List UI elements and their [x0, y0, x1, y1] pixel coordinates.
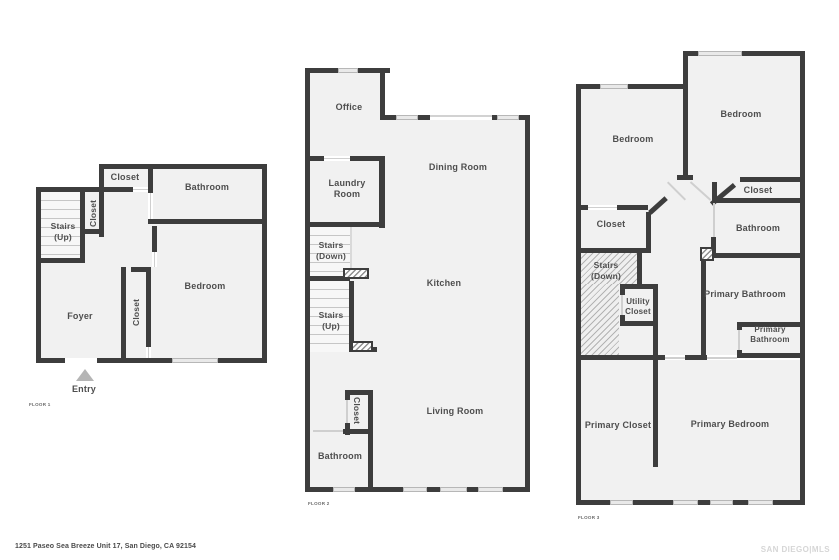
room-label-kitchen: Kitchen: [394, 278, 494, 289]
property-address: 1251 Paseo Sea Breeze Unit 17, San Diego…: [15, 543, 196, 550]
window: [440, 487, 467, 492]
stairs-hatch: [581, 284, 619, 355]
wall: [685, 355, 707, 360]
room-label-primary-bathroom: Primary Bathroom: [685, 289, 805, 300]
wall: [379, 156, 385, 228]
wall: [41, 258, 81, 263]
door-opening: [133, 187, 148, 192]
wall: [36, 187, 41, 363]
wall: [104, 187, 133, 192]
window: [338, 68, 358, 73]
wall: [740, 177, 805, 182]
floor3-tag: FLOOR 3: [578, 515, 600, 520]
wall: [737, 353, 805, 358]
window: [610, 500, 633, 505]
window: [396, 115, 418, 120]
window: [333, 487, 355, 492]
room-label-foyer: Foyer: [50, 311, 110, 322]
room-label-dining-room: Dining Room: [408, 162, 508, 173]
entry-opening: [65, 358, 97, 363]
wall: [683, 51, 688, 180]
room-label-primary-bedroom: Primary Bedroom: [680, 419, 780, 430]
hatch-box: [700, 247, 714, 261]
room-label-bathroom: Bathroom: [305, 451, 375, 462]
floor1-area: [104, 165, 265, 361]
room-label-office: Office: [309, 102, 389, 113]
floor2-tag: FLOOR 2: [308, 501, 330, 506]
wall: [620, 284, 625, 295]
window: [698, 51, 742, 56]
entry-arrow-icon: [76, 369, 94, 381]
floor3-plan: Bedroom Bedroom Closet Bathroom Closet S…: [576, 51, 805, 505]
wall: [148, 164, 153, 193]
room-label-bedroom: Bedroom: [155, 281, 255, 292]
room-label-closet-left: Closet: [576, 219, 646, 230]
wall: [262, 164, 267, 363]
window: [748, 500, 773, 505]
wall: [653, 360, 658, 467]
room-label-stairs-up: Stairs (Up): [311, 310, 351, 331]
wall: [345, 390, 350, 400]
mls-watermark: SAN DIEGO|MLS: [700, 545, 830, 554]
room-label-laundry-room: Laundry Room: [317, 178, 377, 201]
door-opening: [146, 347, 151, 358]
room-label-stairs-down: Stairs (Down): [584, 260, 628, 281]
window: [673, 500, 698, 505]
window: [710, 500, 733, 505]
stair-landing-hatch: [343, 268, 369, 279]
room-label-living-room: Living Room: [405, 406, 505, 417]
entry-label: Entry: [54, 384, 114, 395]
wall: [121, 267, 126, 358]
door-opening: [588, 205, 617, 210]
wall: [576, 84, 688, 89]
wall: [701, 258, 706, 358]
floorplan-page: Closet Bathroom Stairs (Up) Closet Bedro…: [0, 0, 839, 560]
door-opening: [324, 156, 350, 161]
room-label-stairs-up: Stairs (Up): [43, 221, 83, 242]
wall: [677, 175, 693, 180]
window: [600, 84, 628, 89]
room-label-bedroom-left: Bedroom: [583, 134, 683, 145]
wall: [152, 226, 157, 252]
wall: [305, 222, 385, 227]
wall: [646, 212, 651, 253]
door-opening: [148, 193, 153, 219]
room-label-primary-bathroom-2: Primary Bathroom: [740, 325, 800, 345]
room-label-utility-closet: Utility Closet: [618, 297, 658, 317]
wall: [800, 51, 805, 505]
room-label-closet-top: Closet: [102, 172, 148, 183]
wall: [99, 164, 267, 169]
wall: [712, 198, 805, 203]
door-line: [313, 430, 343, 432]
wall: [525, 115, 530, 492]
wall: [710, 253, 805, 258]
room-label-bedroom-right: Bedroom: [691, 109, 791, 120]
window: [172, 358, 218, 363]
door-line: [346, 400, 348, 423]
room-label-bathroom: Bathroom: [708, 223, 808, 234]
room-label-closet-stairs: Closet: [87, 189, 99, 237]
window: [478, 487, 503, 492]
wall: [368, 390, 373, 487]
wall: [576, 84, 581, 505]
room-label-closet-bedroom: Closet: [130, 287, 142, 337]
room-label-closet: Closet: [351, 386, 363, 436]
room-label-stairs-down: Stairs (Down): [311, 240, 351, 261]
room-label-closet-right: Closet: [718, 185, 798, 196]
stair-landing-hatch: [351, 341, 373, 352]
floor2-plan: Office Dining Room Laundry Room Stairs (…: [305, 68, 530, 493]
door-opening: [152, 252, 157, 267]
floor1-plan: Closet Bathroom Stairs (Up) Closet Bedro…: [36, 164, 267, 364]
wall: [148, 219, 267, 224]
door-line: [665, 357, 685, 359]
wall-opening: [430, 115, 492, 120]
window: [403, 487, 427, 492]
floor1-tag: FLOOR 1: [29, 402, 51, 407]
door-line: [707, 357, 737, 359]
window: [497, 115, 519, 120]
room-label-primary-closet: Primary Closet: [576, 420, 660, 431]
wall: [146, 267, 151, 347]
wall: [620, 321, 658, 326]
room-label-bathroom: Bathroom: [157, 182, 257, 193]
wall: [637, 248, 642, 287]
floor2-area: [385, 120, 525, 487]
